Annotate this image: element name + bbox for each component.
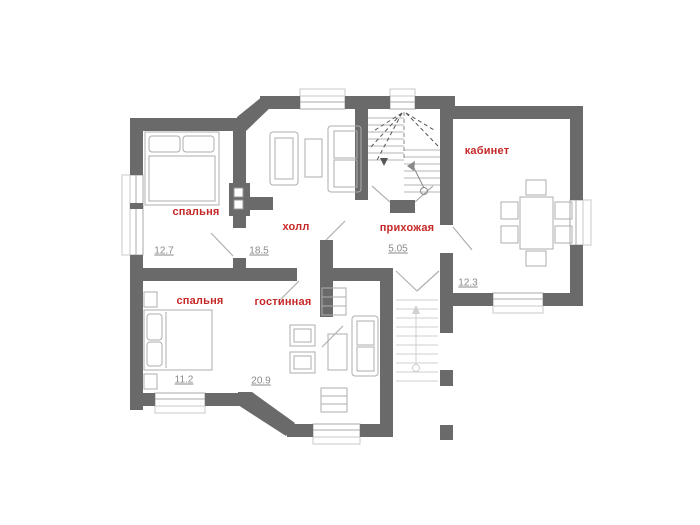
wall	[452, 293, 493, 306]
room-area-bedroom-1: 12.7	[154, 246, 173, 257]
floor-plan-canvas: спальня 12.7 холл 18.5 прихожая 5.05 каб…	[0, 0, 700, 525]
bed-1	[145, 132, 219, 205]
wall	[130, 268, 297, 281]
door-study	[453, 227, 472, 250]
door-stairs-left	[372, 186, 390, 202]
wall	[327, 268, 393, 281]
room-area-bedroom-2: 11.2	[175, 375, 194, 386]
door-entry-hall	[326, 221, 345, 240]
wall	[130, 118, 240, 131]
porch-column	[440, 370, 453, 386]
hall-side-table	[305, 139, 322, 177]
staircase	[368, 112, 440, 195]
wall	[320, 240, 333, 268]
floor-plan-drawing	[0, 0, 700, 525]
wall	[390, 200, 415, 213]
room-label-bedroom-1: спальня	[172, 206, 219, 218]
wall-stub	[250, 197, 273, 210]
wall	[360, 424, 393, 437]
wall	[440, 109, 453, 225]
door-bedroom-2	[322, 326, 343, 347]
room-label-entry-hall: прихожая	[380, 222, 435, 234]
entrance-door-leaf	[417, 271, 439, 291]
stair-arrow-up	[407, 161, 415, 171]
room-label-study: кабинет	[465, 145, 510, 157]
room-area-study: 12.3	[458, 278, 477, 289]
wall-chamfer	[238, 392, 295, 436]
hall-armchair	[270, 132, 298, 185]
wall	[380, 281, 393, 437]
stair-arrow-down	[380, 158, 388, 166]
wall	[570, 119, 583, 200]
room-area-living-room: 20.9	[251, 376, 270, 387]
wall-mullion	[130, 203, 143, 209]
doors-layer	[211, 186, 472, 347]
entrance-door-leaf	[396, 271, 417, 291]
wall	[205, 393, 240, 406]
room-label-bedroom-2: спальня	[176, 295, 223, 307]
wall	[345, 96, 390, 109]
wall	[260, 96, 300, 109]
room-area-entry-hall: 5.05	[388, 244, 407, 255]
door-bedroom-1	[211, 233, 233, 256]
room-area-hall: 18.5	[249, 246, 268, 257]
wall	[445, 106, 583, 119]
porch-steps	[396, 300, 438, 381]
room-label-living-room: гостинная	[255, 296, 312, 308]
wall	[543, 293, 583, 306]
wall	[440, 253, 453, 333]
study-table-set	[501, 180, 572, 266]
wall	[130, 393, 155, 406]
room-label-hall: холл	[282, 221, 309, 233]
porch-column	[440, 425, 453, 440]
